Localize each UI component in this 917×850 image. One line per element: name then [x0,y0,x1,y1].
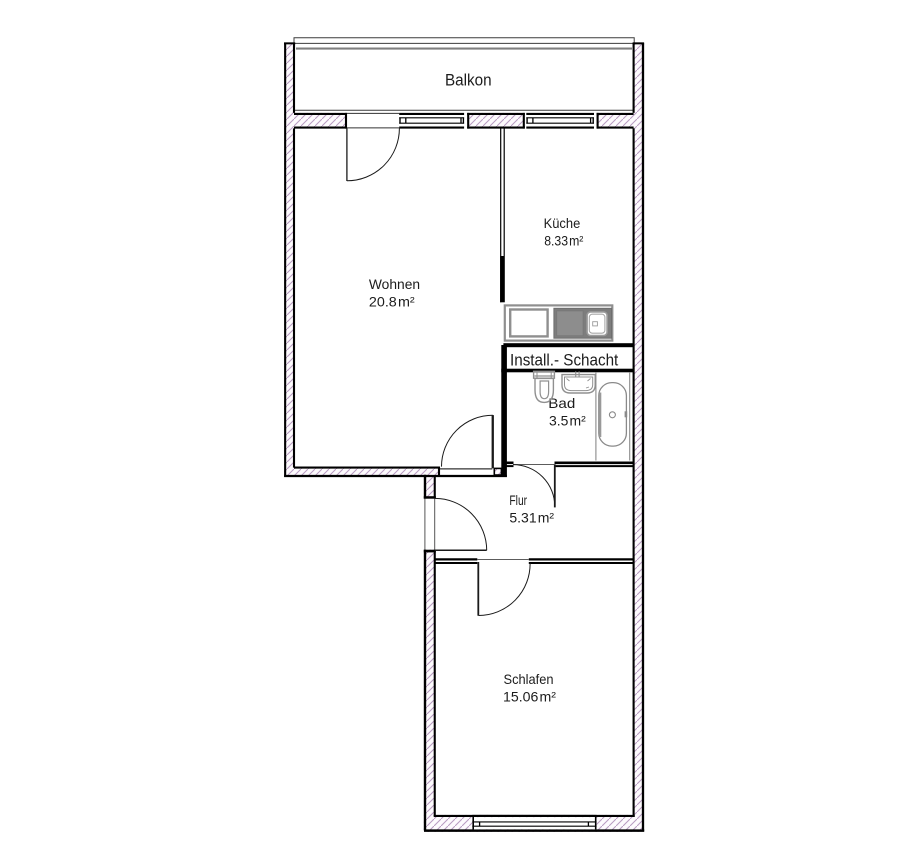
svg-text:20.8 m²: 20.8 m² [369,294,415,310]
svg-text:3.5 m²: 3.5 m² [549,413,586,429]
svg-text:15.06 m²: 15.06 m² [503,689,556,705]
svg-text:Flur: Flur [509,492,527,508]
svg-text:Schlafen: Schlafen [504,671,554,687]
svg-text:Install.- Schacht: Install.- Schacht [510,351,619,370]
svg-text:8.33 m²: 8.33 m² [544,233,583,249]
svg-text:Küche: Küche [544,215,581,231]
svg-text:Balkon: Balkon [445,72,492,90]
svg-text:Wohnen: Wohnen [369,276,420,292]
svg-text:5.31 m²: 5.31 m² [509,510,554,526]
